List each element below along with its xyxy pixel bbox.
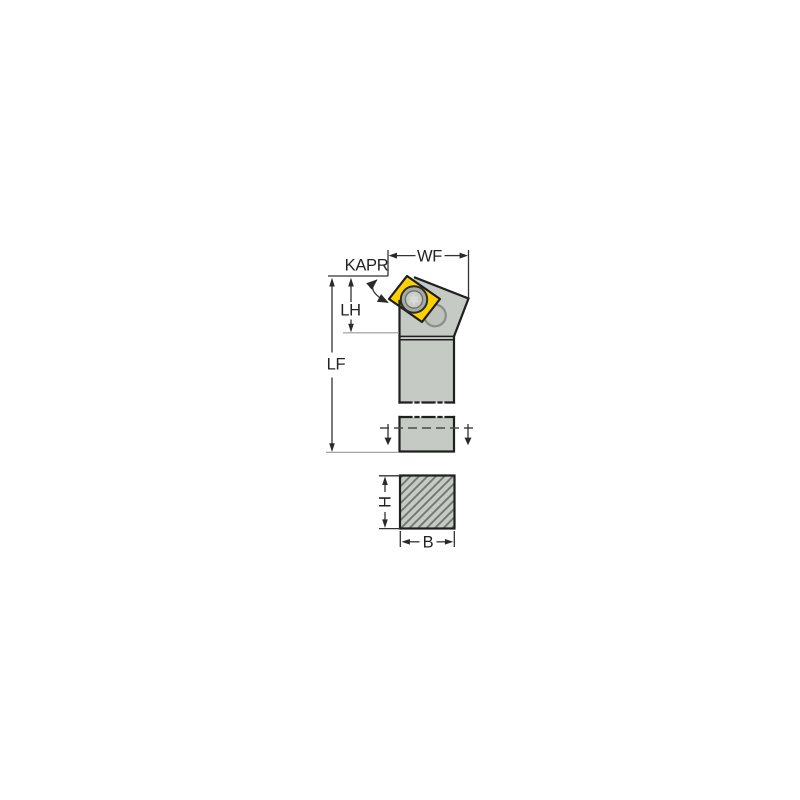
wf-label: WF xyxy=(417,248,442,266)
right-down-arrow-icon xyxy=(465,438,472,446)
lf-label: LF xyxy=(327,356,346,374)
dimension-h: H xyxy=(377,476,401,529)
h-label: H xyxy=(377,496,395,508)
kapr-label: KAPR xyxy=(345,257,389,275)
wf-arrow-right-icon xyxy=(460,253,468,259)
tool-holder-diagram: KAPR WF LH LF xyxy=(0,0,800,800)
b-arrow-left-icon xyxy=(402,539,410,545)
cross-section-hatch xyxy=(400,476,455,529)
left-down-arrow-icon xyxy=(385,438,392,446)
b-arrow-right-icon xyxy=(445,539,453,545)
dimension-lh: LH xyxy=(340,278,399,333)
lh-label: LH xyxy=(340,302,361,320)
wf-arrow-left-icon xyxy=(389,253,397,259)
lf-arrow-down-icon xyxy=(329,443,335,452)
drawing-canvas: KAPR WF LH LF xyxy=(0,0,800,800)
lf-arrow-up-icon xyxy=(329,278,335,287)
lh-arrow-up-icon xyxy=(348,278,354,287)
shank-cross-section xyxy=(400,476,455,529)
h-arrow-up-icon xyxy=(382,476,388,485)
h-arrow-down-icon xyxy=(382,519,388,528)
lh-arrow-down-icon xyxy=(348,324,354,333)
b-label: B xyxy=(423,533,434,551)
kapr-angle-arc xyxy=(373,280,388,303)
dimension-b: B xyxy=(400,531,454,551)
dimension-kapr: KAPR xyxy=(328,257,389,303)
shank-lower-section-fill xyxy=(400,417,455,452)
